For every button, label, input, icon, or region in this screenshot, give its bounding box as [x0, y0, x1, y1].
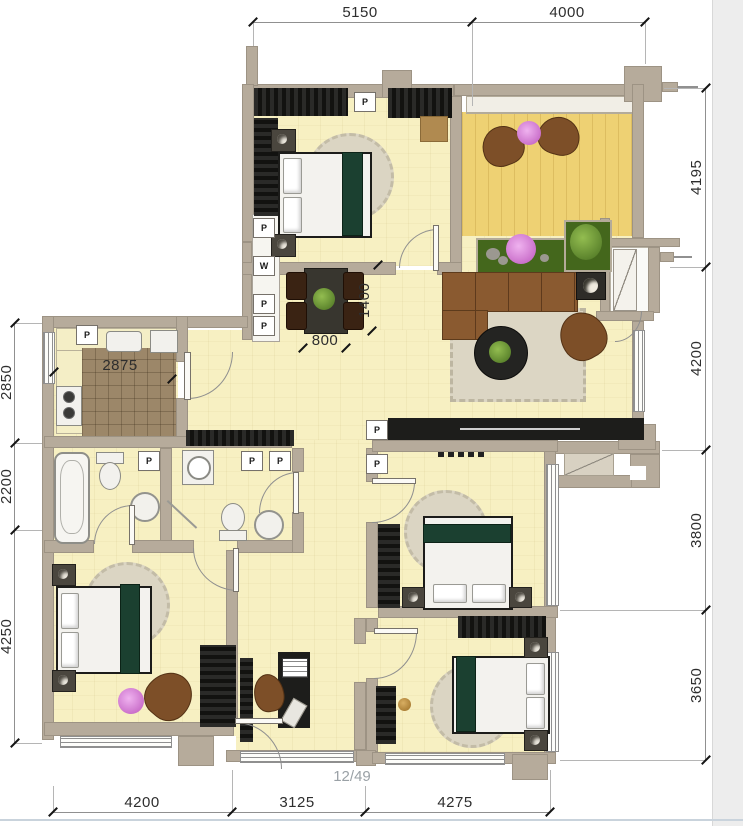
dim-ext	[670, 267, 705, 268]
bath-sink-2	[254, 510, 284, 540]
nightstand	[524, 637, 548, 658]
wall-kitchen-top	[44, 316, 248, 328]
washer-drum	[187, 456, 211, 480]
lamp-icon	[277, 239, 287, 249]
curtain-rail	[438, 452, 488, 457]
nightstand	[52, 670, 76, 692]
pillow	[283, 197, 302, 233]
platform-wall-bottom	[548, 475, 632, 488]
lamp-icon	[408, 592, 418, 602]
pillow	[472, 584, 506, 603]
door-leaf-kitchen	[184, 352, 191, 400]
lamp-icon	[58, 569, 68, 579]
stone	[498, 256, 508, 265]
nightstand	[271, 129, 296, 152]
side-table	[576, 272, 606, 300]
bathtub	[54, 452, 90, 544]
lamp-icon	[58, 675, 68, 685]
dim-ext	[253, 22, 254, 46]
window-bedroom-br-bottom	[385, 753, 505, 765]
dim-label-bottom-1: 4200	[92, 794, 192, 811]
door-leaf-bedroom-br	[374, 628, 418, 634]
wall-bedroom-mr-top	[372, 440, 558, 452]
dim-ext	[550, 770, 551, 812]
dim-ext	[560, 610, 705, 611]
entry-cabinet	[613, 249, 637, 311]
stone	[540, 254, 549, 262]
column-bottom-1	[178, 736, 214, 766]
water-marker: W	[253, 256, 275, 276]
bathtub-basin	[60, 460, 84, 534]
dim-label-right-4: 3650	[688, 640, 708, 730]
tv-cabinet	[388, 418, 644, 440]
dining-chair	[286, 272, 307, 300]
floorplan-page: P P W P P P P P P P P 5150 4000 4195 420…	[0, 0, 743, 826]
wall-bedroom-balcony	[450, 96, 462, 270]
planter-flower-ball	[506, 234, 536, 264]
dim-ext	[14, 743, 42, 744]
door-leaf-bath2	[293, 472, 299, 514]
sofa-main	[442, 272, 578, 312]
wall-porch-stub	[660, 252, 674, 262]
wall-top-balcony	[454, 84, 644, 96]
dim-label-right-1: 4195	[688, 132, 708, 222]
planter-plant	[570, 224, 602, 260]
window-bedroom-bl-bottom	[60, 736, 172, 748]
bedroom-bl-bed-runner	[120, 584, 140, 674]
dining-chair	[286, 302, 307, 330]
dim-label-right-3: 3800	[688, 485, 708, 575]
dim-label-right-2: 4200	[688, 313, 708, 403]
wall-porch-top	[605, 238, 680, 247]
pipe-marker: P	[138, 451, 160, 471]
dim-label-bottom-2: 3125	[250, 794, 344, 811]
nightstand	[52, 564, 76, 586]
tv-screen-line	[460, 428, 580, 430]
pipe-marker: P	[241, 451, 263, 471]
door-leaf-bedroom-mr	[372, 478, 416, 484]
window-bedroom-mr	[546, 464, 559, 606]
pipe-marker: P	[269, 451, 291, 471]
dim-ext	[14, 443, 42, 444]
dim-label-left-1: 2850	[0, 337, 18, 427]
wardrobe-top-strip-1	[254, 88, 348, 116]
tick-line-topright	[678, 86, 698, 88]
pillow	[283, 158, 302, 194]
platform-notch	[630, 466, 646, 480]
bedroom-dresser	[420, 116, 448, 142]
door-leaf-bath1	[129, 505, 135, 545]
dim-ext	[14, 530, 42, 531]
wardrobe-bedroom-br	[458, 616, 546, 638]
kitchen-sink	[106, 331, 142, 352]
pink-pouf	[118, 688, 144, 714]
pillow	[433, 584, 467, 603]
monitor	[282, 658, 308, 678]
toilet-bowl-1	[99, 462, 121, 490]
wardrobe-bedroom-mr	[378, 524, 400, 608]
wall-bath-divider	[160, 448, 172, 542]
wall-porch-right	[648, 247, 660, 313]
column-bottom-3	[512, 754, 548, 780]
nightstand	[509, 587, 532, 608]
pipe-marker: P	[76, 325, 98, 345]
toilet-bowl-2	[221, 503, 245, 532]
pipe-marker: P	[253, 294, 275, 314]
page-indicator: 12/49	[320, 768, 384, 785]
stove-burner	[63, 407, 75, 419]
vase	[398, 698, 411, 711]
dim-label-bottom-3: 4275	[405, 794, 505, 811]
dim-ext	[14, 323, 42, 324]
pipe-marker: P	[366, 454, 388, 474]
dim-ext	[472, 22, 473, 106]
washing-machine	[182, 450, 214, 485]
pipe-marker: P	[354, 92, 376, 112]
wall-bath-right-a	[292, 448, 304, 472]
dim-ext	[560, 760, 705, 761]
dresser-bedroom-br	[376, 686, 396, 744]
dim-label-left-3: 4250	[0, 591, 18, 681]
toilet-tank-2	[219, 530, 247, 541]
viewer-side-strip[interactable]	[712, 0, 743, 826]
dim-ext	[664, 88, 705, 89]
lamp-icon	[277, 134, 287, 144]
wall-bath-bottom-b	[132, 540, 194, 553]
pillow	[61, 632, 79, 668]
wardrobe-top-strip-2	[388, 88, 452, 118]
pipe-marker: P	[253, 218, 275, 238]
lamp-icon	[515, 592, 525, 602]
window-living-right	[633, 330, 645, 412]
viewer-bottom-edge	[0, 819, 743, 821]
pillow	[526, 663, 545, 695]
dim-label-top-2: 4000	[507, 4, 627, 21]
wardrobe-bedroom-bl	[200, 645, 236, 727]
wall-study-right-a	[354, 618, 366, 644]
column-top-right-stub	[662, 82, 678, 92]
dim-ext	[662, 450, 705, 451]
moon-lamp-icon	[583, 278, 598, 293]
bedroom-mr-bed-runner	[423, 524, 511, 543]
pillow	[61, 593, 79, 629]
wall-stub-topleft	[246, 46, 258, 86]
tick-line-porch	[674, 256, 692, 258]
wall-balcony-right	[632, 84, 644, 238]
dim-label-left-2: 2200	[0, 441, 18, 531]
hallway-cabinet	[186, 430, 294, 446]
bedroom1-bed-runner	[342, 152, 363, 236]
lamp-icon	[530, 642, 540, 652]
fridge	[150, 330, 178, 353]
wall-study-right-b	[354, 682, 366, 750]
dining-centerpiece	[313, 288, 335, 310]
dim-line-top	[253, 22, 645, 23]
balcony-window-sill	[466, 96, 634, 114]
dim-ext	[232, 770, 233, 812]
dim-ext	[645, 22, 646, 64]
nightstand	[402, 587, 425, 608]
balcony-flower-table	[517, 121, 541, 145]
dim-label-kitchen: 2875	[92, 357, 148, 374]
coffee-table-plant	[489, 341, 511, 363]
bedroom-br-bed-runner	[456, 656, 476, 732]
door-leaf-bedroom1	[433, 225, 439, 271]
stove	[56, 386, 82, 426]
door-leaf-bedroom-bl	[233, 548, 239, 592]
dim-line-bottom	[53, 812, 550, 813]
wall-corridor-right-b	[366, 522, 378, 608]
stove-burner	[63, 391, 75, 403]
lamp-icon	[530, 735, 540, 745]
dim-label-top-1: 5150	[300, 4, 420, 21]
pillow	[526, 697, 545, 729]
door-leaf-study	[235, 718, 283, 724]
pipe-marker: P	[253, 316, 275, 336]
ac-unit	[564, 453, 614, 476]
nightstand	[524, 730, 548, 751]
dim-label-dining-depth: 1400	[356, 272, 376, 328]
dim-label-dining-width: 800	[302, 332, 348, 349]
pipe-marker: P	[366, 420, 388, 440]
wall-bath-right-b	[292, 512, 304, 553]
